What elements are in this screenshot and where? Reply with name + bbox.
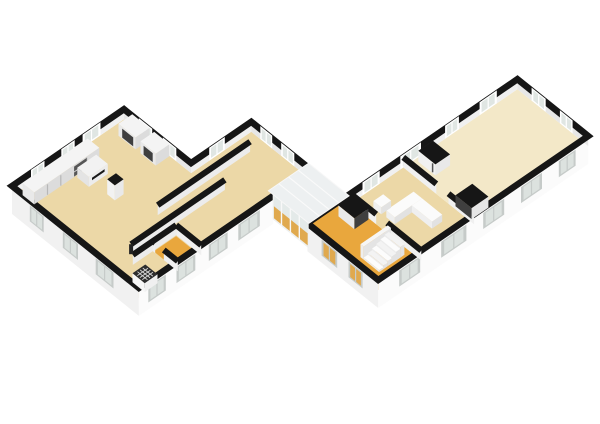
stair-railing-sw-face	[361, 244, 364, 260]
floor-plan-3d-render	[0, 0, 600, 424]
wc-wall-w-top	[153, 241, 155, 243]
floor-plan-viewport	[0, 0, 600, 424]
